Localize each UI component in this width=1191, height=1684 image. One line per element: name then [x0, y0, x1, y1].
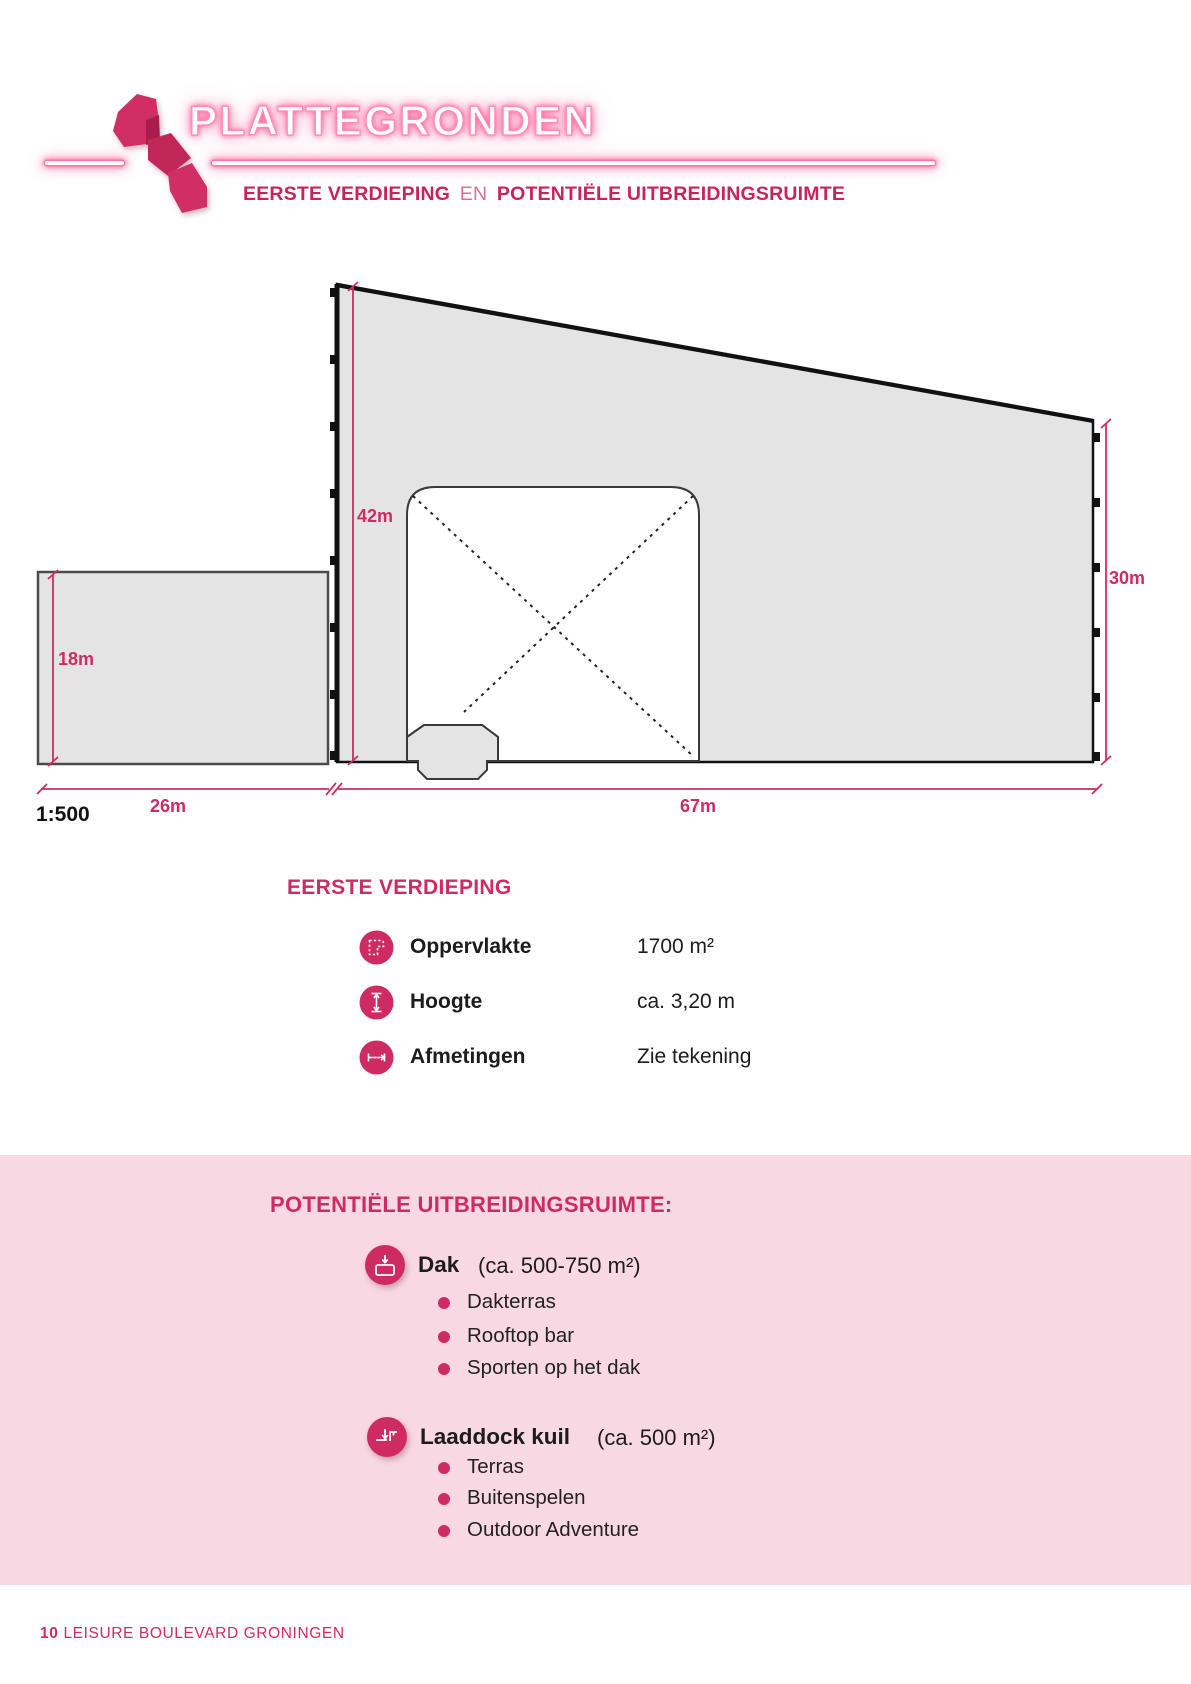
- scale-label: 1:500: [36, 803, 90, 827]
- info-value-height: ca. 3,20 m: [637, 990, 735, 1014]
- bullet-dot: [438, 1363, 450, 1375]
- brochure-page: PLATTEGRONDEN EERSTE VERDIEPING EN POTEN…: [0, 0, 1191, 1684]
- bullet-item-buitenspelen: Buitenspelen: [467, 1486, 586, 1510]
- info-value-area: 1700 m²: [637, 935, 714, 959]
- bullet-dot: [438, 1297, 450, 1309]
- page-number: 10: [40, 1625, 58, 1642]
- bullet-item-dakterras: Dakterras: [467, 1290, 556, 1314]
- dimensions-icon: [359, 1040, 394, 1075]
- loading-dock-icon: [365, 1415, 409, 1459]
- info-label-area: Oppervlakte: [410, 935, 531, 959]
- dim-main-width: 67m: [680, 796, 716, 817]
- bullet-item-terras: Terras: [467, 1455, 524, 1479]
- roof-icon: [363, 1243, 407, 1287]
- floorplan-diagram: [0, 0, 1191, 850]
- info-label-height: Hoogte: [410, 990, 482, 1014]
- bullet-dot: [438, 1493, 450, 1505]
- expansion-group-subtitle-dock: (ca. 500 m²): [597, 1425, 716, 1451]
- bullet-item-outdoor-adventure: Outdoor Adventure: [467, 1518, 639, 1542]
- expansion-heading: POTENTIËLE UITBREIDINGSRUIMTE:: [270, 1192, 673, 1218]
- dim-annex-width: 26m: [150, 796, 186, 817]
- height-icon: [359, 985, 394, 1020]
- dim-annex-height: 18m: [58, 649, 94, 670]
- info-value-dimensions: Zie tekening: [637, 1045, 751, 1069]
- first-floor-heading: EERSTE VERDIEPING: [287, 876, 511, 900]
- bullet-dot: [438, 1331, 450, 1343]
- info-label-dimensions: Afmetingen: [410, 1045, 526, 1069]
- bullet-dot: [438, 1525, 450, 1537]
- bullet-item-rooftop-bar: Rooftop bar: [467, 1324, 574, 1348]
- bullet-dot: [438, 1462, 450, 1474]
- page-footer: 10LEISURE BOULEVARD GRONINGEN: [40, 1625, 345, 1643]
- dim-main-height-right: 30m: [1109, 568, 1145, 589]
- dim-main-height-left: 42m: [357, 506, 393, 527]
- footer-text: LEISURE BOULEVARD GRONINGEN: [63, 1625, 344, 1642]
- expansion-group-title-dock: Laaddock kuil: [420, 1424, 570, 1450]
- expansion-group-subtitle-roof: (ca. 500-750 m²): [478, 1253, 641, 1279]
- protrusion-shape: [407, 725, 498, 779]
- expansion-group-title-roof: Dak: [418, 1252, 459, 1278]
- bullet-item-sporten: Sporten op het dak: [467, 1356, 640, 1380]
- area-icon: [359, 930, 394, 965]
